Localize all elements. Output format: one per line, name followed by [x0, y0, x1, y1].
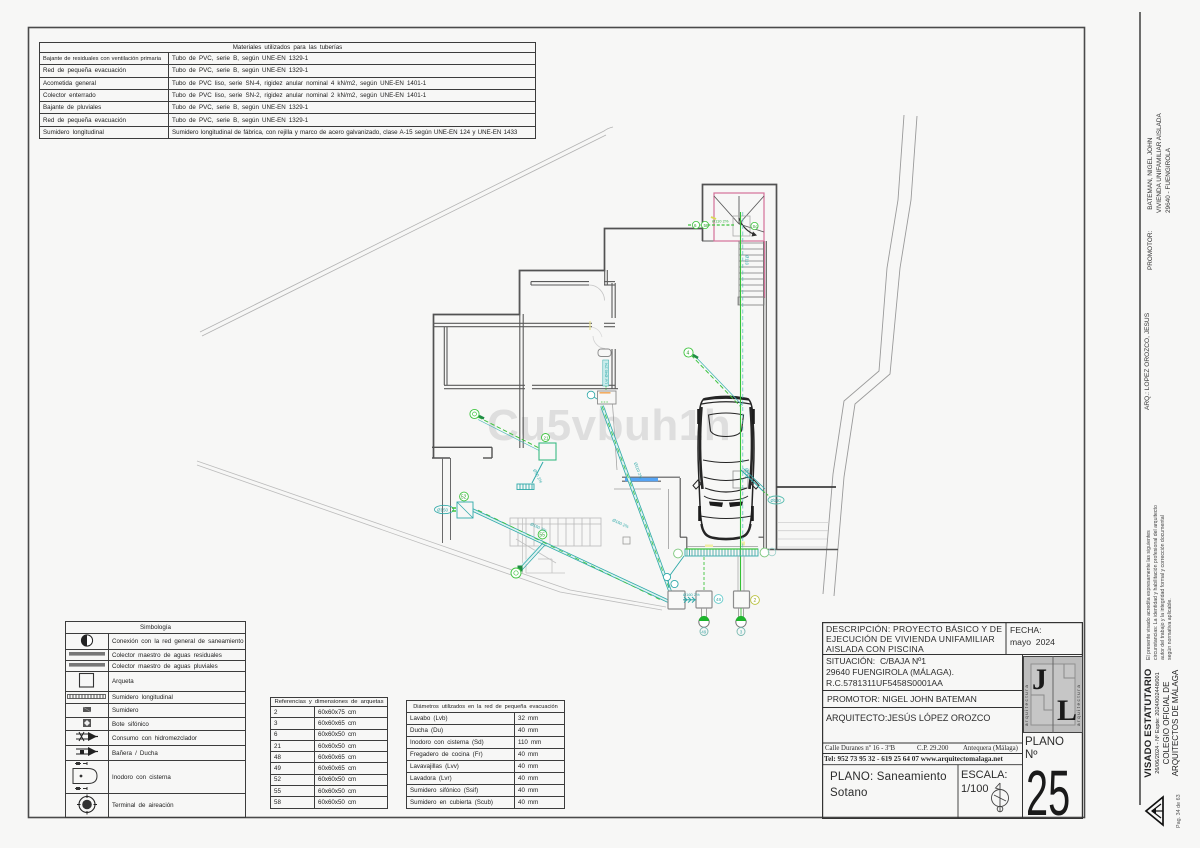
- svg-text:arquitectura: arquitectura: [1076, 684, 1081, 726]
- svg-text:Ø160 2%: Ø160 2%: [683, 592, 700, 597]
- svg-text:L: L: [1057, 694, 1077, 727]
- svg-text:Ø150: Ø150: [437, 508, 449, 513]
- svg-text:52: 52: [461, 495, 467, 501]
- svg-text:21: 21: [544, 436, 550, 441]
- svg-text:55: 55: [539, 533, 545, 539]
- svg-text:Ø110: Ø110: [745, 468, 750, 479]
- svg-text:3: 3: [740, 630, 743, 635]
- svg-text:48: 48: [716, 597, 722, 603]
- svg-text:Ø50 2%: Ø50 2%: [532, 468, 544, 484]
- svg-text:58: 58: [704, 223, 710, 228]
- svg-text:Ø160: Ø160: [771, 498, 782, 503]
- svg-text:2: 2: [754, 598, 757, 604]
- svg-text:49: 49: [701, 630, 707, 635]
- svg-text:Ø160 2%: Ø160 2%: [612, 517, 630, 529]
- svg-text:arquitectura: arquitectura: [1024, 684, 1029, 726]
- svg-text:Sc: Sc: [753, 224, 759, 229]
- svg-text:Ø110: Ø110: [745, 255, 750, 266]
- svg-text:4: 4: [687, 351, 690, 357]
- svg-text:J: J: [1032, 663, 1047, 696]
- svg-text:Lvr Ø40 2%: Lvr Ø40 2%: [604, 362, 609, 384]
